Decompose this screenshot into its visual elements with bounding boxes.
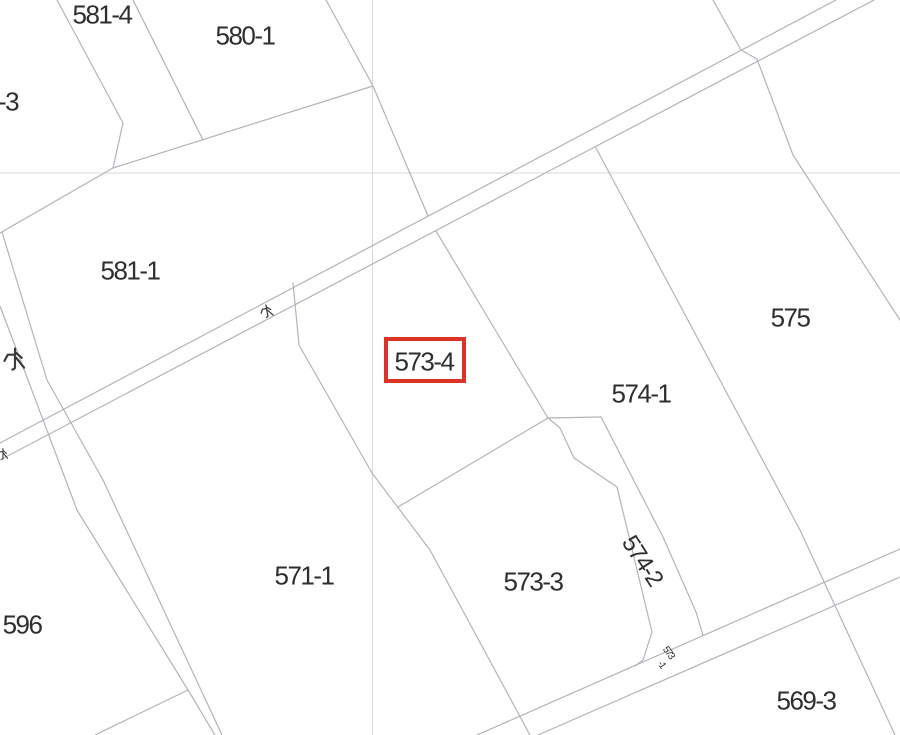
- water-mark-road-left-stroke: [0, 452, 3, 455]
- waterway-a-lower-line: [0, 0, 874, 460]
- parcel-label-575: 575: [771, 302, 811, 332]
- waterway-strip-west-line: [0, 306, 215, 735]
- parcel-label-574-2: 574-2: [616, 531, 669, 592]
- water-mark-strip: [4, 348, 24, 369]
- strip-574-2-east-line: [601, 417, 703, 635]
- parcel-label-573-3: 573-3: [504, 566, 564, 596]
- parcel-573-4-east-line: [436, 231, 548, 418]
- parcel-label-571-1: 571-1: [275, 560, 335, 590]
- parcel-labels-layer: 581-4580-1-3581-1573-4574-1575571-1573-3…: [0, 0, 837, 715]
- parcel-label-573-1-line2: -1: [655, 659, 669, 672]
- parcel-label-574-1: 574-1: [612, 378, 672, 408]
- parcel-label-581-1: 581-1: [101, 255, 161, 285]
- strip-574-2-top-line: [548, 417, 601, 418]
- parcel-label-596: 596: [3, 609, 43, 639]
- water-mark-road-left-stroke: [4, 451, 7, 453]
- parcel-596-south-line: [95, 690, 188, 735]
- water-mark-road-left-stroke: [2, 449, 3, 460]
- parcel-label-3: -3: [0, 86, 19, 116]
- waterway-strip-east-line: [2, 232, 222, 735]
- water-mark-road-center: [260, 304, 273, 318]
- cadastral-map-canvas[interactable]: 581-4580-1-3581-1573-4574-1575571-1573-3…: [0, 0, 900, 735]
- water-mark-road-center-stroke: [264, 305, 268, 317]
- water-mark-strip-stroke: [12, 348, 15, 369]
- water-mark-road-center-stroke: [260, 309, 266, 314]
- parcel-label-581-4: 581-4: [73, 0, 133, 29]
- parcel-581-4-east-line: [133, 0, 203, 140]
- water-mark-strip-stroke: [4, 355, 14, 361]
- parcel-label-580-1: 580-1: [216, 20, 276, 50]
- road-b-lower-line: [538, 577, 900, 735]
- parcel-573-3-northwest-line: [398, 418, 548, 507]
- parcel-575-northeast-line: [713, 0, 900, 320]
- parcel-label-573-4: 573-4: [395, 346, 455, 376]
- waterway-a-upper-line: [0, 0, 836, 443]
- water-marks-layer: [0, 304, 273, 459]
- cadastral-map[interactable]: 581-4580-1-3581-1573-4574-1575571-1573-3…: [0, 0, 900, 735]
- parcel-574-1-east-line: [596, 148, 895, 735]
- parcel-580-1-east-line: [326, 0, 428, 216]
- water-mark-road-center-stroke: [268, 309, 274, 315]
- parcel-label-569-3: 569-3: [777, 685, 837, 715]
